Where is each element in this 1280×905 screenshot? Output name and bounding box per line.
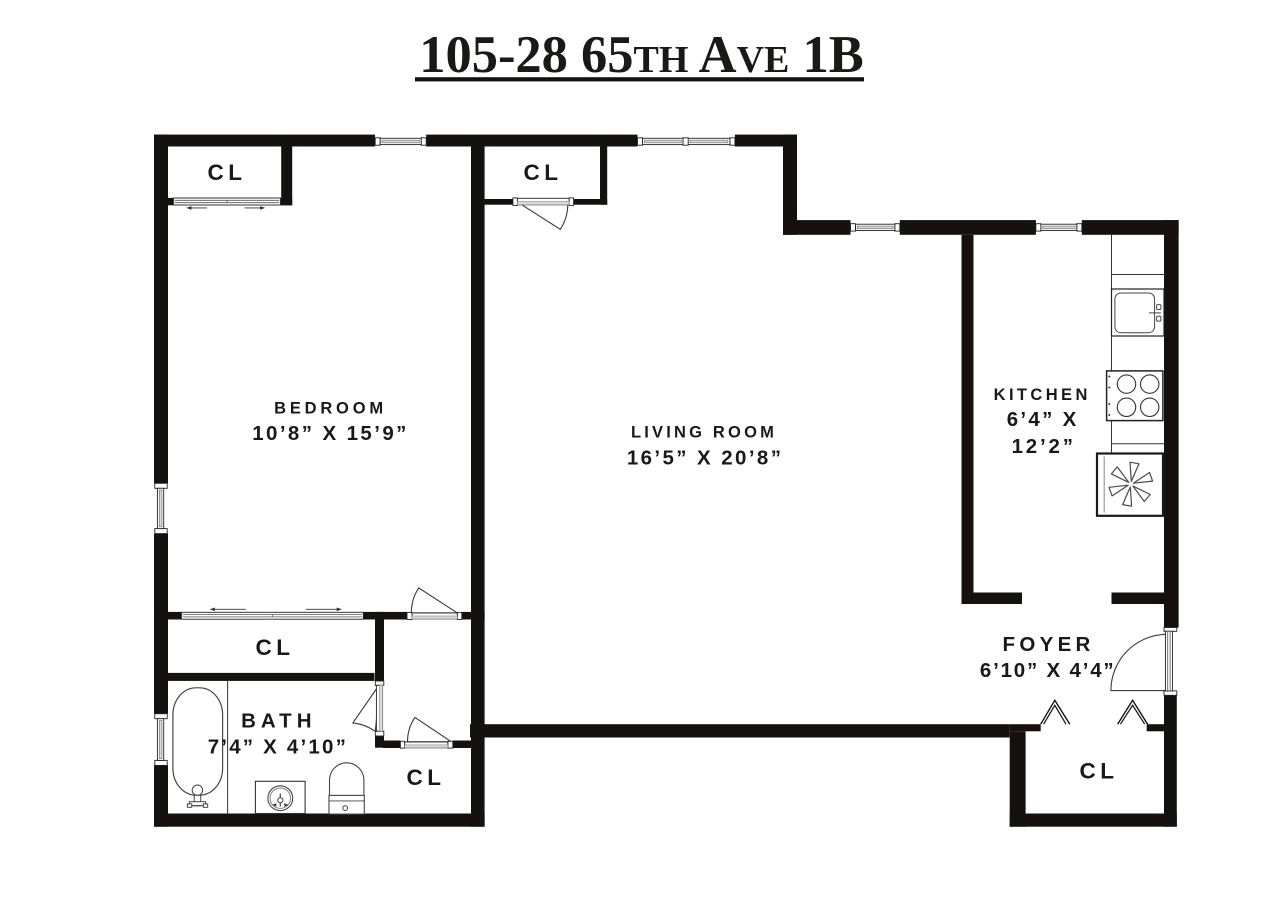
svg-text:16’5” X 20’8”: 16’5” X 20’8” — [627, 447, 784, 470]
svg-text:12’2”: 12’2” — [1012, 435, 1076, 458]
svg-text:6’4” X: 6’4” X — [1007, 408, 1079, 431]
svg-text:BEDROOM: BEDROOM — [274, 400, 387, 418]
svg-text:CL: CL — [256, 635, 295, 660]
svg-text:CL: CL — [1080, 759, 1119, 784]
svg-text:FOYER: FOYER — [1003, 633, 1095, 656]
svg-text:CL: CL — [208, 160, 247, 185]
svg-text:BATH: BATH — [241, 710, 316, 733]
svg-text:6’10” X 4’4”: 6’10” X 4’4” — [980, 659, 1116, 682]
svg-text:KITCHEN: KITCHEN — [994, 386, 1091, 404]
svg-text:LIVING ROOM: LIVING ROOM — [631, 423, 777, 441]
svg-text:7’4” X 4’10”: 7’4” X 4’10” — [208, 736, 348, 759]
svg-text:10’8” X 15’9”: 10’8” X 15’9” — [252, 422, 409, 445]
svg-text:CL: CL — [524, 160, 563, 185]
svg-text:CL: CL — [407, 765, 446, 790]
